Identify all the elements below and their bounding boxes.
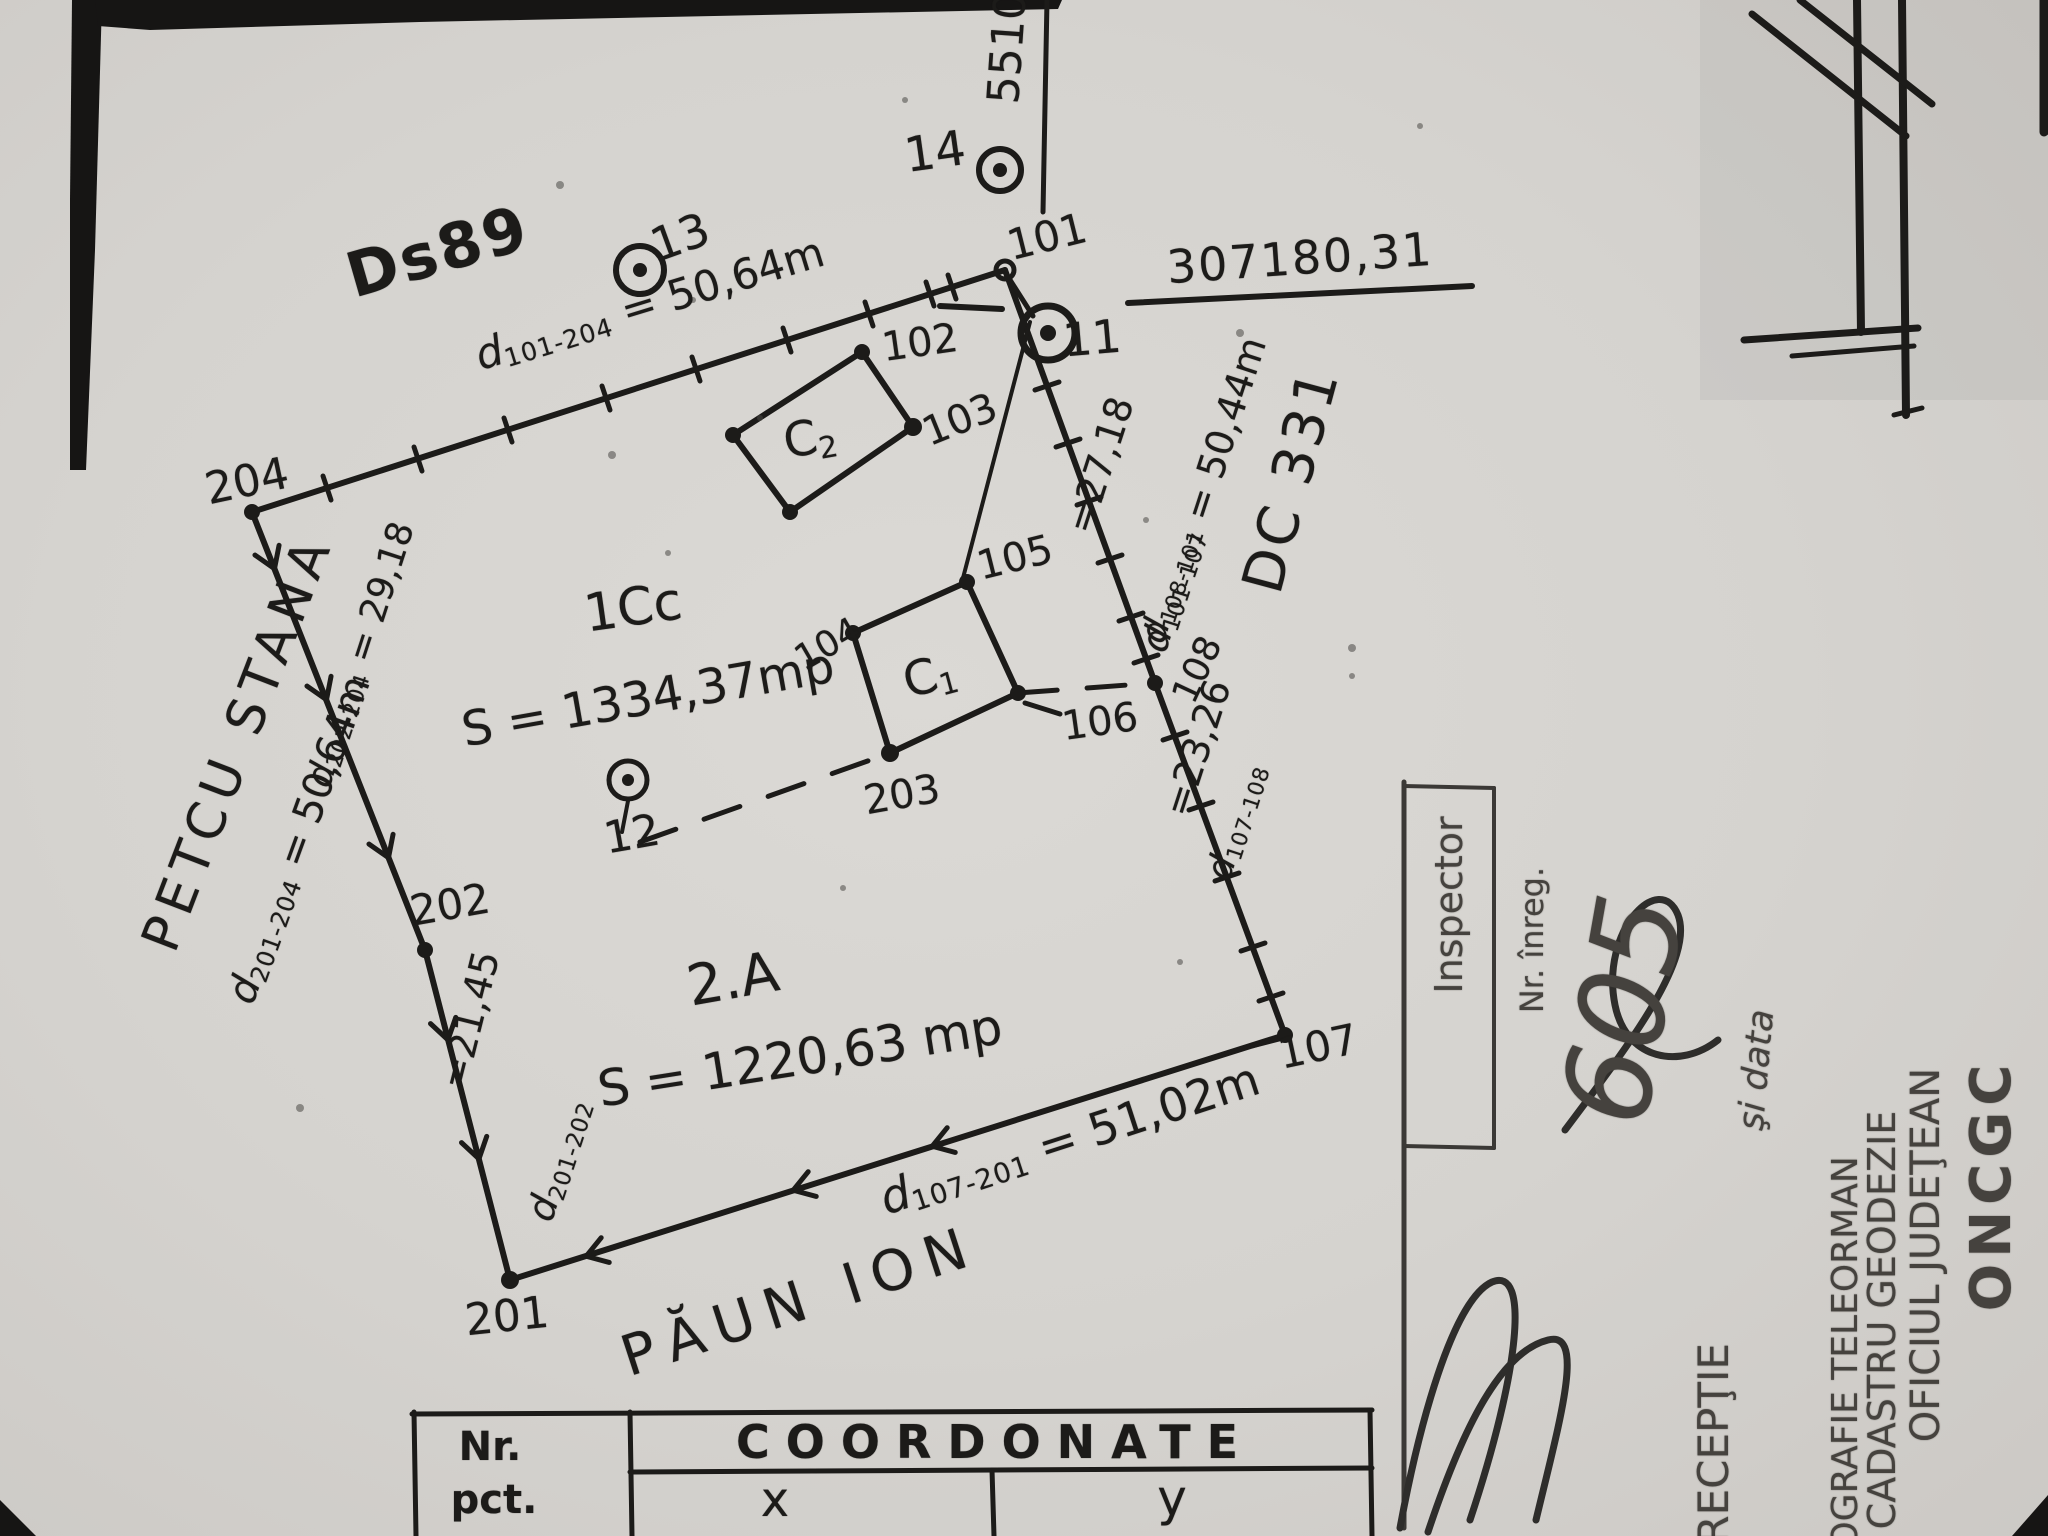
table-header-x: x <box>761 1476 789 1524</box>
point-106-label: 106 <box>1059 697 1140 747</box>
stamp-office-line1: OFICIUL JUDEŢEAN <box>1906 1068 1946 1442</box>
stamp-office-line3: CARTOGRAFIE TELEORMAN <box>1828 1156 1864 1536</box>
stamp-role: Inspector <box>1430 816 1468 993</box>
stamp-reg-label: Nr. înreg. <box>1516 867 1548 1013</box>
building-c2-label: C2 <box>780 410 841 471</box>
station-11-label: 11 <box>1061 313 1123 364</box>
parcel-1cc-name: 1Cc <box>581 575 685 640</box>
table-header-y: y <box>1157 1473 1187 1523</box>
stamp-receptie: ŞI RECEPŢIE <box>1693 1343 1735 1536</box>
stamp-org-acronym: ONCGC <box>1964 1059 2020 1312</box>
ref-number-5510: 5510 <box>982 0 1034 105</box>
stamp-office-line2: CADASTRU GEODEZIE <box>1863 1111 1901 1530</box>
point-201-label: 201 <box>463 1291 551 1344</box>
table-col-pct: pct. <box>451 1480 538 1520</box>
parcel-2a-name: 2.A <box>683 944 783 1015</box>
table-col-nr: Nr. <box>459 1427 522 1467</box>
stamp-date-label: şi data <box>1734 1008 1780 1132</box>
station-12-label: 12 <box>601 808 664 861</box>
station-14-label: 14 <box>901 124 968 180</box>
point-102-label: 102 <box>879 318 960 368</box>
scanned-cadastral-plan: Ds89 13 14 11 12 5510 307180,31 101 102 … <box>0 0 2048 1536</box>
table-header-coordonate: COORDONATE <box>736 1419 1254 1465</box>
